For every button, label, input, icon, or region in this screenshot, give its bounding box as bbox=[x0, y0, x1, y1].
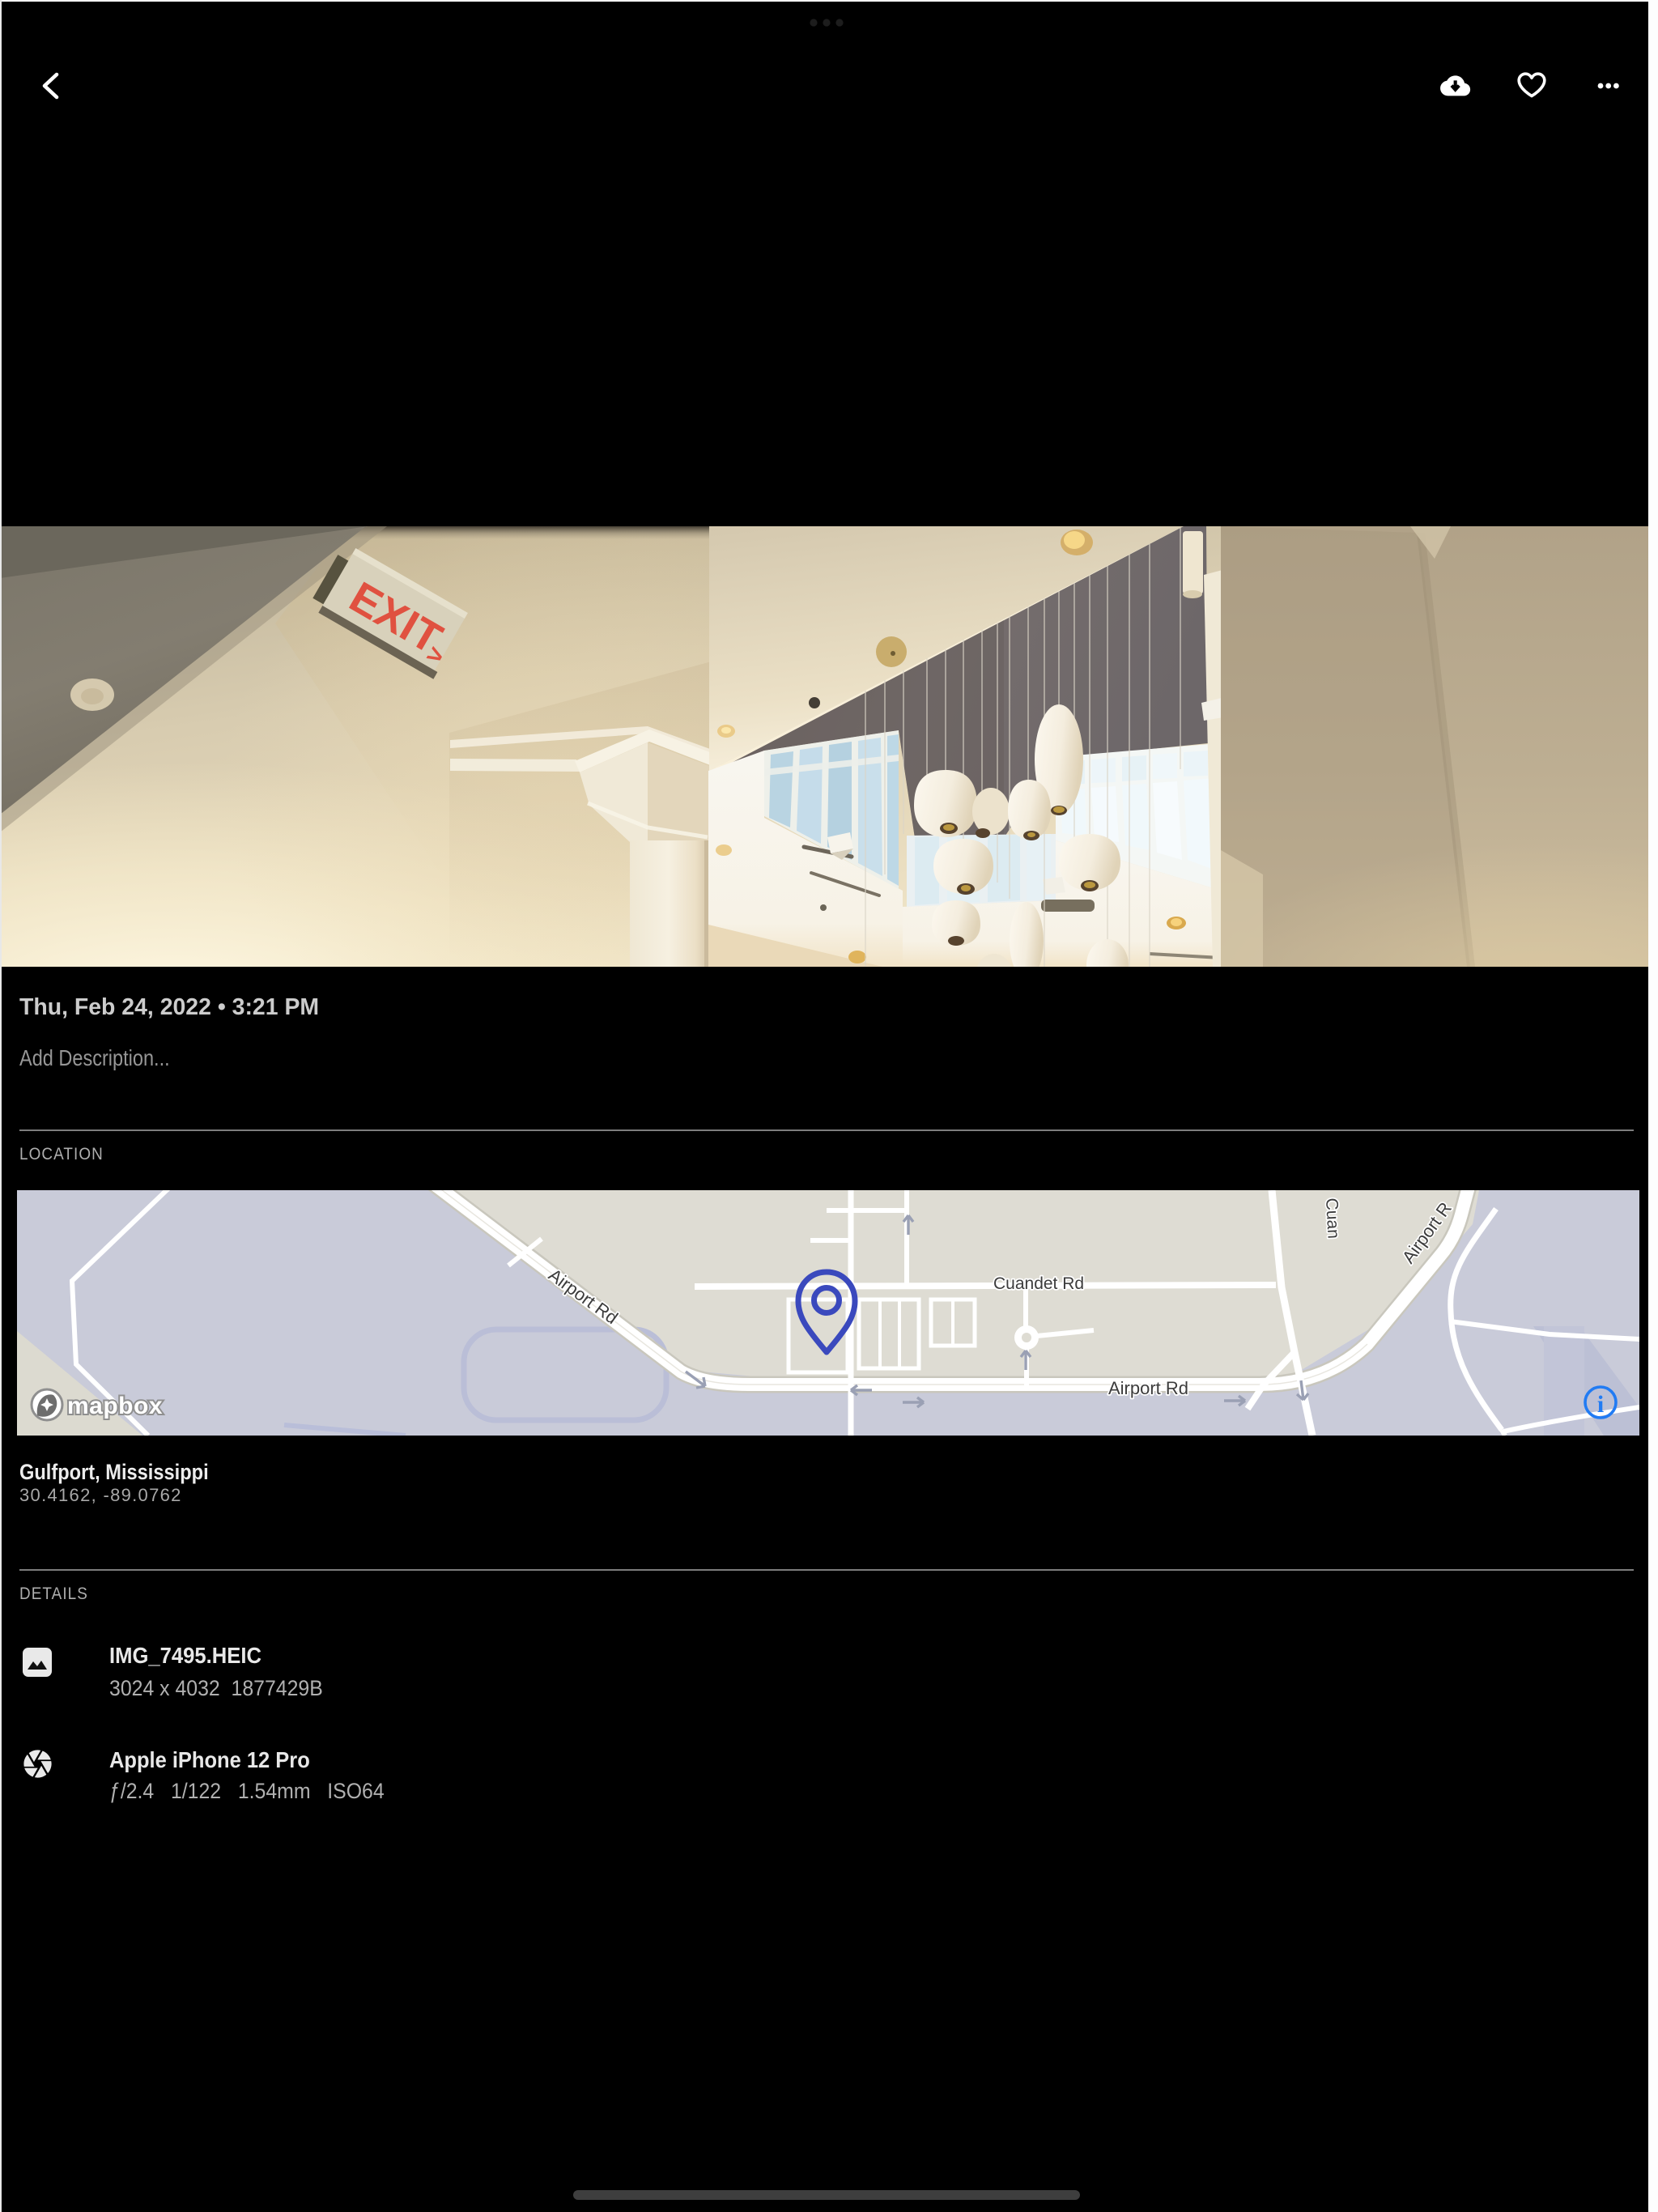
svg-text:Cuandet Rd: Cuandet Rd bbox=[993, 1274, 1084, 1293]
svg-text:mapbox: mapbox bbox=[67, 1393, 163, 1419]
svg-text:Airport Rd: Airport Rd bbox=[1108, 1378, 1188, 1398]
svg-text:Cuan: Cuan bbox=[1322, 1197, 1343, 1239]
svg-text:i: i bbox=[1597, 1391, 1604, 1418]
